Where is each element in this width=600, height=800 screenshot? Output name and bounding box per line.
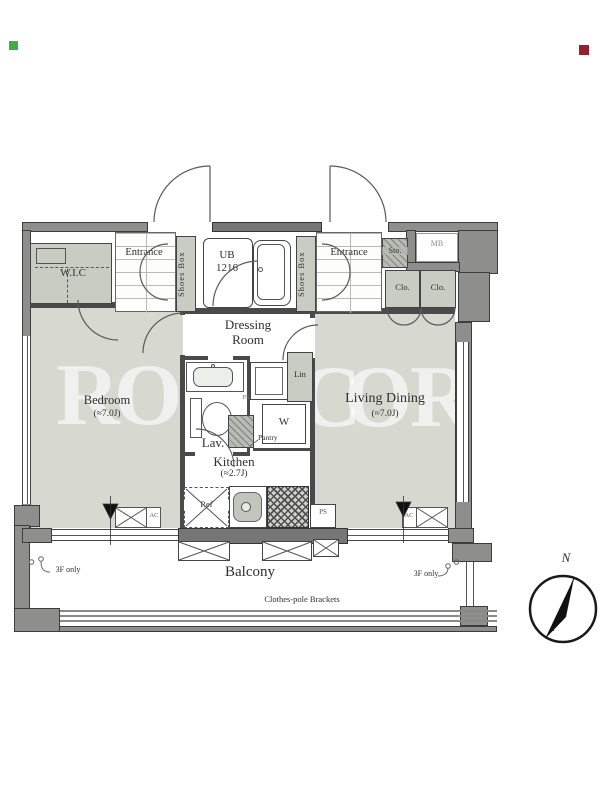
compass-icon <box>530 576 596 642</box>
wic-label: W.I.C <box>40 268 106 280</box>
balcony-equipment-2 <box>262 541 312 561</box>
pipe-space-upper-label: PS <box>236 395 256 402</box>
pantry-label: Pantry <box>258 434 298 442</box>
ac-left-label: AC <box>147 513 161 520</box>
wall-top-left <box>22 222 148 232</box>
wall-top-middle <box>212 222 322 232</box>
closet-left-label: Clo. <box>385 283 420 292</box>
gas-stove <box>267 486 309 528</box>
bedroom-window <box>52 529 178 541</box>
living-dining-size: (≈7.0J) <box>328 410 442 420</box>
unit-bath-label1: UB <box>206 250 248 262</box>
entrance-left-label: Entrance <box>112 247 176 258</box>
bathtub <box>253 240 291 306</box>
meter-box-label: MB <box>416 240 458 248</box>
toilet-tank <box>190 398 202 438</box>
living-side-window <box>456 342 469 502</box>
kitchen-size: (≈2.7J) <box>192 470 276 480</box>
compass-north-label: N <box>556 551 576 565</box>
living-dining-floor <box>315 312 455 528</box>
refrigerator-label: Ref <box>184 500 229 509</box>
green-marker <box>9 41 18 50</box>
shoes-box-left: Shoes Box <box>176 236 196 312</box>
bedroom-label: Bedroom <box>55 394 159 407</box>
sto-label: Sto. <box>382 247 408 255</box>
bracket-left-2 <box>39 557 44 562</box>
wall-bottom-stub-left <box>22 528 52 543</box>
shoes-box-right: Shoes Box <box>296 236 316 312</box>
balcony-rail-2 <box>14 615 497 617</box>
shoes-box-left-label: Shoes Box <box>177 237 195 311</box>
balcony-rail-3 <box>14 620 497 622</box>
entrance-right-floor <box>316 232 382 312</box>
living-dining-label: Living Dining <box>328 392 442 407</box>
balcony-rail-left-block <box>14 608 60 632</box>
red-marker <box>579 45 589 55</box>
bedroom-size: (≈7.0J) <box>55 410 159 420</box>
unit-bath-label2: 1216 <box>203 263 251 275</box>
ac-right-label: AC <box>402 513 416 520</box>
wall-left-step <box>14 505 40 527</box>
bedroom-side-window <box>22 336 31 504</box>
entrance-right-label: Entrance <box>318 247 380 258</box>
wall-right-upper <box>458 230 498 274</box>
balcony-equipment-1 <box>178 541 230 561</box>
linen-label: Lin <box>287 370 313 379</box>
clothes-pole-label: Clothes-pole Brackets <box>222 595 382 604</box>
wall-right-mid <box>458 272 490 322</box>
floor-plan: R O C O R W.I.C <box>0 0 600 800</box>
bracket-right-1 <box>446 564 451 569</box>
balcony-equipment-3 <box>313 539 339 557</box>
wall-dressing-lav-a <box>183 356 208 360</box>
dressing-room-label1: Dressing <box>200 318 296 332</box>
entrance-left-floor <box>115 232 176 312</box>
dressing-room-label2: Room <box>200 333 296 347</box>
closet-right-label: Clo. <box>420 283 456 292</box>
pipe-space-lower-label: PS <box>310 509 336 516</box>
shoes-box-right-label: Shoes Box <box>297 237 315 311</box>
wall-bottom-stub-right <box>448 528 474 543</box>
front-door-left-arc <box>154 166 210 222</box>
kitchen-label: Kitchen <box>192 455 276 469</box>
living-window <box>348 529 448 541</box>
pantry-box <box>228 415 254 448</box>
front-door-right-arc <box>330 166 386 222</box>
wic-shelf <box>36 248 66 264</box>
wall-under-washer <box>253 448 312 451</box>
balcony-rail-base <box>14 626 497 632</box>
floor-note-left: 3F only <box>46 566 90 574</box>
balcony-rail-1 <box>14 610 497 612</box>
balcony-divider-header <box>452 543 492 562</box>
balcony-label: Balcony <box>200 565 300 581</box>
tub-handle <box>258 267 263 272</box>
floor-note-right: 3F only <box>404 570 448 578</box>
washing-machine-label: W <box>262 417 306 429</box>
kitchen-sink-unit <box>229 486 267 528</box>
washbasin <box>186 362 244 392</box>
